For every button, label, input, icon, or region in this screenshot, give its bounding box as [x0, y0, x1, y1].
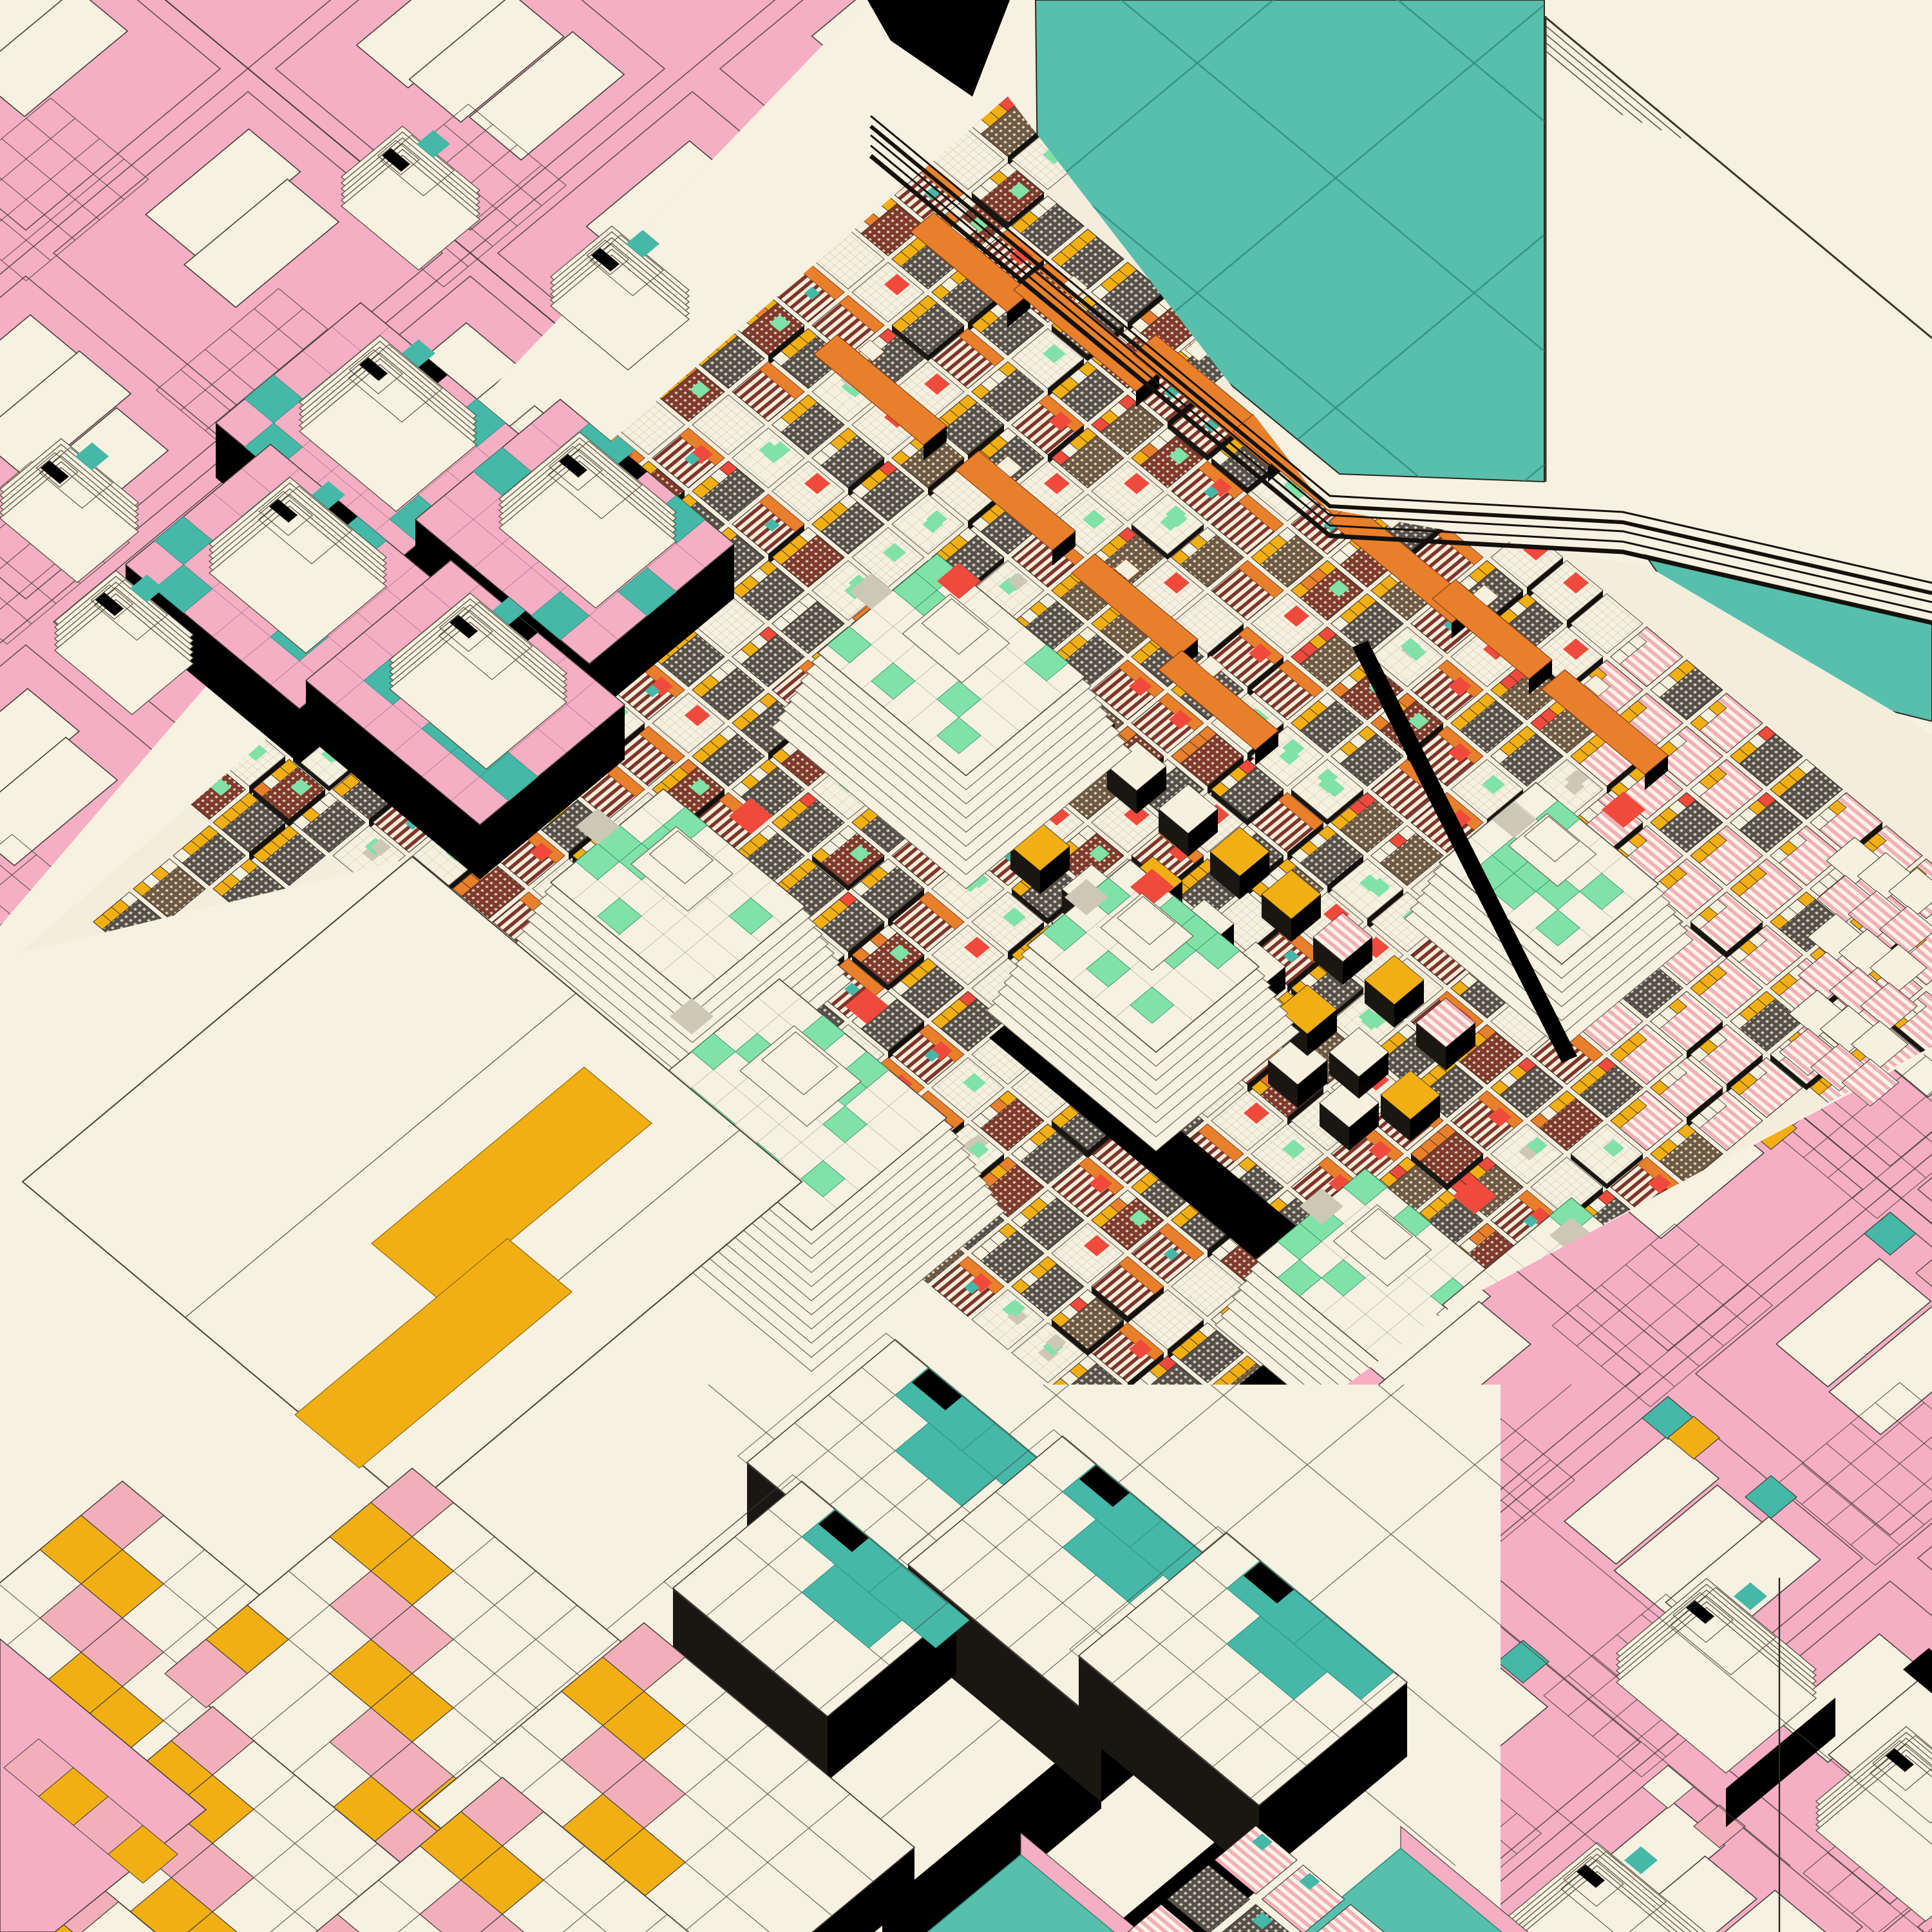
city-canvas — [0, 0, 1932, 1932]
generative-city-artwork — [0, 0, 1932, 1932]
